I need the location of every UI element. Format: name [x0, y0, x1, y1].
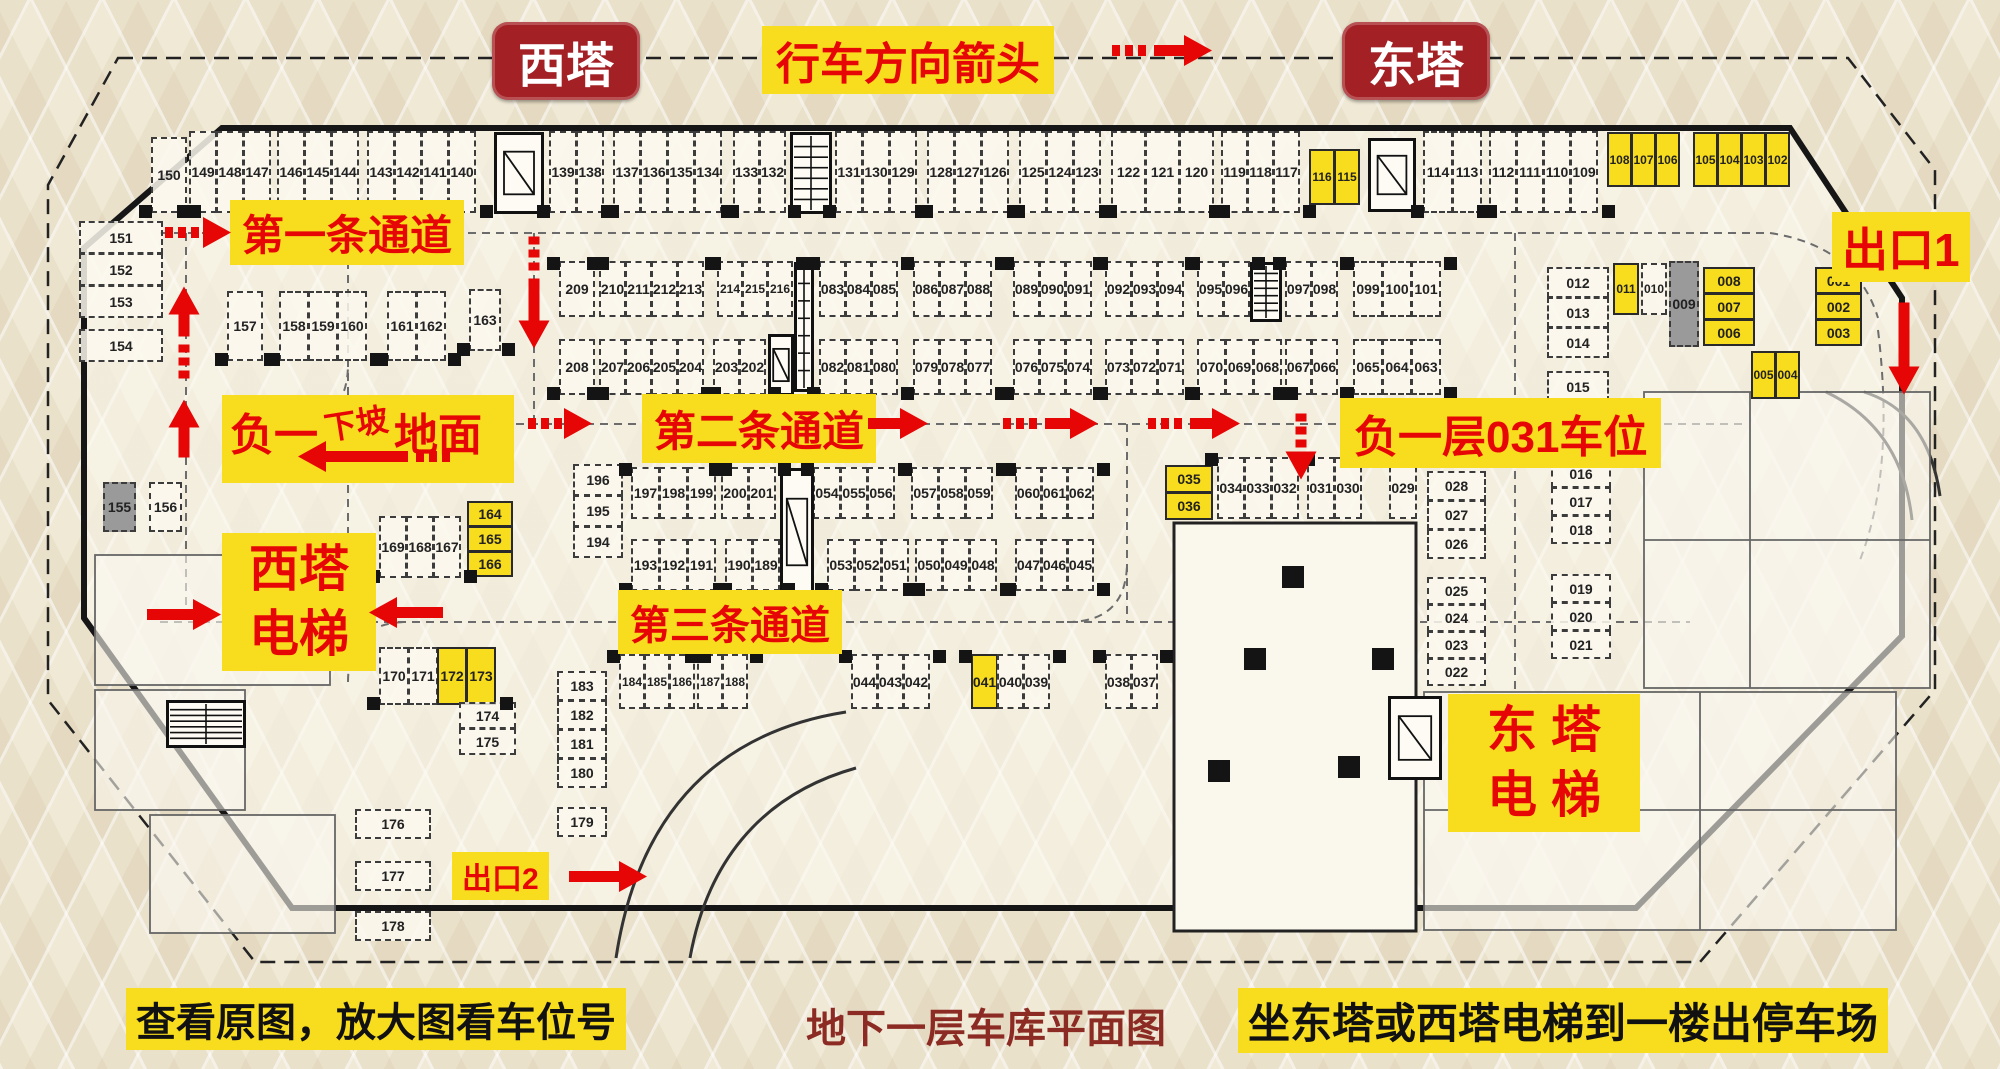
parking-stall: 027	[1427, 500, 1486, 530]
parking-stall: 079	[913, 339, 940, 395]
west-elevator-arrow	[147, 597, 221, 632]
lane2-arrow	[528, 406, 592, 441]
lane1-label: 第一条通道	[230, 200, 464, 265]
parking-stall: 060	[1015, 467, 1042, 519]
parking-stall: 176	[355, 809, 431, 839]
structural-column	[587, 387, 600, 400]
stall-group: 105104103102	[1694, 133, 1790, 187]
parking-stall: 010	[1641, 263, 1667, 315]
stall-group: 047046045	[1016, 540, 1094, 591]
parking-stall: 173	[466, 647, 496, 705]
structural-column	[1097, 463, 1110, 476]
structural-column	[1205, 453, 1218, 466]
parking-stall: 042	[903, 654, 930, 709]
parking-stall: 094	[1157, 261, 1184, 317]
parking-stall: 037	[1131, 654, 1158, 709]
structural-column	[500, 697, 513, 710]
parking-stall: 114	[1423, 131, 1453, 213]
parking-stall: 099	[1353, 261, 1383, 317]
parking-stall: 198	[659, 467, 688, 519]
spot-031-callout: 负一层031车位	[1340, 398, 1661, 468]
stall-group: 010	[1642, 264, 1667, 315]
parking-stall: 172	[437, 647, 467, 705]
parking-stall: 130	[862, 131, 890, 213]
parking-stall: 185	[644, 654, 670, 709]
parking-stall: 171	[408, 647, 438, 705]
parking-stall: 025	[1427, 577, 1486, 605]
structural-column	[1185, 257, 1198, 270]
parking-stall: 154	[79, 329, 163, 362]
parking-stall: 047	[1015, 539, 1042, 591]
elevator-icon	[780, 468, 814, 601]
structural-column	[1602, 205, 1615, 218]
parking-stall: 159	[308, 291, 338, 361]
parking-stall: 211	[625, 261, 652, 317]
parking-stall: 077	[965, 339, 992, 395]
parking-stall: 189	[752, 539, 780, 591]
structural-column	[1007, 205, 1020, 218]
parking-stall: 046	[1041, 539, 1068, 591]
parking-stall: 054	[813, 467, 841, 519]
structural-column	[901, 387, 914, 400]
parking-stall: 021	[1551, 630, 1611, 659]
stall-group: 076075074	[1014, 340, 1092, 395]
parking-stall: 011	[1613, 263, 1639, 315]
parking-stall: 132	[759, 131, 786, 213]
stall-group: 157	[228, 292, 263, 361]
stall-group: 125124123	[1020, 132, 1101, 213]
down-to-031-arrow	[1284, 413, 1319, 479]
up-arrow	[167, 399, 202, 457]
stall-group: 011	[1614, 264, 1639, 315]
west-elevator-line2: 电梯	[222, 602, 376, 667]
structural-column	[933, 650, 946, 663]
parking-stall: 075	[1039, 339, 1066, 395]
parking-stall: 040	[997, 654, 1024, 709]
structural-column	[1160, 650, 1173, 663]
stall-group: 005004	[1752, 352, 1800, 399]
parking-stall: 116	[1309, 149, 1335, 205]
parking-stall: 177	[355, 861, 431, 891]
down-arrow	[517, 236, 552, 348]
structural-column	[1001, 387, 1014, 400]
parking-stall: 018	[1551, 515, 1611, 544]
parking-stall: 035	[1165, 465, 1213, 493]
parking-stall: 017	[1551, 487, 1611, 516]
parking-stall: 205	[651, 339, 678, 395]
parking-stall: 007	[1703, 293, 1755, 320]
stall-group: 169168167	[380, 517, 461, 578]
structural-column	[464, 570, 477, 583]
structural-column	[807, 257, 820, 270]
parking-stall: 122	[1111, 131, 1146, 213]
parking-stall: 202	[739, 339, 766, 395]
structural-column	[915, 205, 928, 218]
parking-stall: 041	[971, 654, 998, 709]
east-elevator-line2: 电 梯	[1448, 763, 1640, 828]
structural-column	[899, 463, 912, 476]
parking-stall: 183	[557, 671, 607, 701]
parking-stall: 023	[1427, 631, 1486, 659]
parking-stall: 127	[954, 131, 982, 213]
parking-stall: 034	[1217, 457, 1245, 519]
stall-group: 164165166	[468, 502, 513, 577]
ramp-down-arrow	[298, 439, 450, 474]
structural-column	[139, 205, 152, 218]
parking-stall: 019	[1551, 574, 1611, 603]
stall-group: 158159160	[280, 292, 367, 361]
parking-stall: 073	[1105, 339, 1132, 395]
parking-stall: 188	[722, 654, 748, 709]
stall-group: 156	[150, 483, 182, 532]
structural-column	[1273, 257, 1286, 270]
stall-group: 083084085	[820, 262, 898, 317]
parking-stall: 095	[1197, 261, 1224, 317]
stall-group: 122121120	[1112, 132, 1214, 213]
parking-stall: 156	[149, 482, 182, 532]
structural-column	[1252, 257, 1265, 270]
structural-column	[1003, 583, 1016, 596]
structural-column	[547, 387, 560, 400]
parking-stall: 182	[557, 700, 607, 730]
structural-column	[215, 353, 228, 366]
parking-stall: 072	[1131, 339, 1158, 395]
parking-stall: 004	[1775, 351, 1800, 399]
parking-stall: 082	[819, 339, 846, 395]
parking-stall: 165	[467, 526, 513, 552]
parking-stall: 105	[1693, 132, 1718, 187]
stall-group: 214215216	[718, 262, 793, 317]
east-tower-badge: 东塔	[1342, 22, 1490, 100]
parking-stall: 036	[1165, 492, 1213, 520]
parking-stall: 117	[1273, 131, 1300, 213]
parking-stall: 126	[981, 131, 1009, 213]
parking-stall: 169	[379, 516, 407, 578]
parking-stall: 039	[1023, 654, 1050, 709]
stall-group: 183182181180	[558, 672, 607, 788]
stall-group: 082081080	[820, 340, 898, 395]
parking-stall: 048	[969, 539, 997, 591]
structural-column	[367, 697, 380, 710]
parking-stall: 175	[459, 728, 516, 755]
stair-icon	[1250, 262, 1282, 327]
structural-column	[721, 205, 734, 218]
parking-stall: 028	[1427, 471, 1486, 501]
parking-stall: 134	[694, 131, 722, 213]
parking-stall: 115	[1334, 149, 1360, 205]
parking-stall: 045	[1067, 539, 1094, 591]
stall-group: 161162	[388, 292, 446, 361]
parking-stall: 194	[573, 526, 623, 558]
parking-stall: 158	[279, 291, 309, 361]
parking-stall: 013	[1547, 297, 1609, 328]
parking-stall: 056	[867, 467, 895, 519]
structural-column	[1285, 387, 1298, 400]
parking-stall: 053	[827, 539, 855, 591]
caption-zoom-hint: 查看原图，放大图看车位号	[126, 988, 626, 1050]
structural-column	[901, 257, 914, 270]
stall-group: 207206205204	[600, 340, 704, 395]
structural-column	[705, 257, 718, 270]
west-elevator-line1: 西塔	[222, 537, 376, 602]
parking-stall: 170	[379, 647, 409, 705]
parking-stall: 087	[939, 261, 966, 317]
parking-stall: 157	[227, 291, 263, 361]
stall-group: 060061062	[1016, 468, 1094, 519]
parking-stall: 197	[631, 467, 660, 519]
parking-stall: 139	[549, 131, 577, 213]
parking-stall: 085	[871, 261, 898, 317]
stall-group: 178	[356, 912, 431, 941]
parking-stall: 071	[1157, 339, 1184, 395]
parking-stall: 164	[467, 501, 513, 527]
stair-icon	[166, 700, 246, 753]
structural-column	[959, 650, 972, 663]
parking-stall: 022	[1427, 658, 1486, 686]
parking-stall: 005	[1751, 351, 1776, 399]
stall-group: 108107106	[1608, 133, 1680, 187]
stall-group: 133132	[734, 132, 786, 213]
parking-stall: 195	[573, 495, 623, 527]
parking-stall: 061	[1041, 467, 1068, 519]
parking-stall: 088	[965, 261, 992, 317]
structural-column	[1001, 257, 1014, 270]
parking-stall: 212	[651, 261, 678, 317]
structural-column	[1209, 205, 1222, 218]
parking-stall: 125	[1019, 131, 1047, 213]
stall-group: 210211212213	[600, 262, 704, 317]
parking-stall: 151	[79, 221, 163, 254]
caption-elevator-hint: 坐东塔或西塔电梯到一楼出停车场	[1238, 988, 1888, 1053]
drive-direction-label: 行车方向箭头	[762, 26, 1054, 94]
parking-stall: 137	[613, 131, 641, 213]
stall-group: 112111110109	[1490, 132, 1598, 213]
east-elevator-line1: 东 塔	[1448, 698, 1640, 763]
parking-stall: 112	[1489, 131, 1517, 213]
parking-stall: 059	[965, 467, 993, 519]
elevator-icon	[1388, 696, 1442, 785]
parking-stall: 069	[1225, 339, 1254, 395]
parking-stall: 161	[387, 291, 417, 361]
parking-stall: 121	[1145, 131, 1180, 213]
parking-stall: 008	[1703, 267, 1755, 294]
structural-column	[375, 353, 388, 366]
parking-stall: 092	[1105, 261, 1132, 317]
parking-stall: 216	[767, 261, 793, 317]
stall-group: 019020021	[1552, 575, 1611, 659]
parking-stall: 066	[1311, 339, 1338, 395]
stall-group: 128127126	[928, 132, 1009, 213]
parking-stall: 213	[677, 261, 704, 317]
parking-stall: 152	[79, 253, 163, 286]
stall-group: 209	[560, 262, 595, 317]
stall-group: 137136135134	[614, 132, 722, 213]
parking-stall: 111	[1516, 131, 1544, 213]
parking-stall: 201	[748, 467, 776, 519]
parking-stall: 196	[573, 464, 623, 496]
structural-column	[1303, 205, 1316, 218]
stall-group: 203202	[714, 340, 766, 395]
parking-stall: 104	[1717, 132, 1742, 187]
lane1-entry-arrow	[165, 215, 231, 250]
parking-stall: 096	[1223, 261, 1250, 317]
parking-stall: 162	[416, 291, 446, 361]
parking-stall: 133	[733, 131, 760, 213]
stall-group: 044043042	[852, 655, 930, 709]
stall-group: 070069068	[1198, 340, 1282, 395]
stair-icon	[794, 262, 814, 397]
parking-stall: 078	[939, 339, 966, 395]
structural-column	[480, 205, 493, 218]
parking-stall: 113	[1452, 131, 1482, 213]
stall-group: 163	[470, 290, 501, 351]
stall-group: 155	[104, 483, 136, 532]
parking-stall: 074	[1065, 339, 1092, 395]
parking-stall: 083	[819, 261, 846, 317]
parking-stall: 052	[854, 539, 882, 591]
structural-column	[1093, 387, 1106, 400]
parking-stall: 064	[1382, 339, 1412, 395]
parking-stall: 191	[687, 539, 716, 591]
stall-group: 008007006	[1704, 268, 1755, 346]
parking-stall: 167	[433, 516, 461, 578]
stall-group: 116115	[1310, 150, 1360, 205]
parking-stall: 129	[889, 131, 917, 213]
stall-group: 009	[1670, 262, 1699, 347]
parking-stall: 102	[1765, 132, 1790, 187]
parking-stall: 002	[1815, 293, 1862, 320]
parking-stall: 090	[1039, 261, 1066, 317]
stall-group: 150	[152, 138, 187, 213]
parking-stall: 204	[677, 339, 704, 395]
parking-stall: 014	[1547, 327, 1609, 358]
stall-group: 179	[558, 808, 607, 837]
stall-group: 038037	[1106, 655, 1158, 709]
east-tower-elevator-label: 东 塔 电 梯	[1448, 694, 1640, 832]
structural-column	[502, 343, 515, 356]
stall-group: 190189	[726, 540, 780, 591]
west-tower-badge: 西塔	[492, 22, 640, 100]
structural-column	[457, 343, 470, 356]
structural-column	[1097, 583, 1110, 596]
stall-group: 176	[356, 810, 431, 839]
parking-stall: 107	[1631, 132, 1656, 187]
structural-column	[1444, 257, 1457, 270]
parking-stall: 057	[911, 467, 939, 519]
parking-stall: 076	[1013, 339, 1040, 395]
exit2-arrow	[569, 859, 647, 894]
parking-stall: 118	[1247, 131, 1274, 213]
parking-stall: 101	[1411, 261, 1441, 317]
stall-group: 079078077	[914, 340, 992, 395]
structural-column	[537, 205, 550, 218]
parking-stall: 093	[1131, 261, 1158, 317]
parking-stall: 178	[355, 911, 431, 941]
stall-group: 139138	[550, 132, 604, 213]
parking-stall: 138	[576, 131, 604, 213]
parking-stall: 103	[1741, 132, 1766, 187]
parking-stall: 097	[1285, 261, 1312, 317]
structural-column	[1341, 257, 1354, 270]
parking-stall: 026	[1427, 529, 1486, 559]
stall-group: 025024023022	[1428, 578, 1486, 686]
parking-stall: 108	[1607, 132, 1632, 187]
structural-column	[1093, 650, 1106, 663]
parking-stall: 043	[877, 654, 904, 709]
parking-stall: 084	[845, 261, 872, 317]
west-elevator-arrow	[369, 595, 443, 630]
parking-stall: 091	[1065, 261, 1092, 317]
elevator-icon	[1368, 138, 1416, 217]
structural-column	[1093, 257, 1106, 270]
parking-stall: 119	[1221, 131, 1248, 213]
stall-group: 041040039	[972, 655, 1050, 709]
stall-group: 196195194	[574, 465, 623, 558]
structural-column	[823, 205, 836, 218]
stall-group: 057058059	[912, 468, 993, 519]
structural-column	[709, 463, 722, 476]
stall-group: 012013014	[1548, 268, 1609, 358]
stall-group: 028027026	[1428, 472, 1486, 559]
parking-stall: 120	[1179, 131, 1214, 213]
parking-stall: 012	[1547, 267, 1609, 298]
lane2-arrow	[1148, 406, 1240, 441]
parking-stall: 149	[189, 131, 217, 213]
stall-group: 197198199	[632, 468, 716, 519]
structural-column	[619, 463, 632, 476]
stall-group: 193192191	[632, 540, 716, 591]
parking-stall: 038	[1105, 654, 1132, 709]
parking-stall: 033	[1244, 457, 1272, 519]
parking-stall: 192	[659, 539, 688, 591]
parking-stall: 193	[631, 539, 660, 591]
parking-stall: 180	[557, 758, 607, 788]
parking-stall: 184	[619, 654, 645, 709]
parking-stall: 044	[851, 654, 878, 709]
west-tower-elevator-label: 西塔 电梯	[222, 533, 376, 671]
exit1-arrow	[1887, 302, 1922, 394]
stall-group: 095096	[1198, 262, 1250, 317]
parking-stall: 128	[927, 131, 955, 213]
parking-stall: 153	[79, 285, 163, 318]
structural-column	[587, 257, 600, 270]
drive-direction-arrow	[1112, 33, 1212, 68]
parking-floor-plan: 西塔 东塔 行车方向箭头 第一条通道 第二条通道 第三条通道 出口1 出口2 负…	[0, 0, 2000, 1069]
parking-stall: 179	[557, 807, 607, 837]
parking-stall: 062	[1067, 467, 1094, 519]
stall-group: 184185186	[620, 655, 695, 709]
structural-column	[1099, 205, 1112, 218]
parking-stall: 020	[1551, 602, 1611, 631]
parking-stall: 080	[871, 339, 898, 395]
parking-stall: 160	[337, 291, 367, 361]
parking-stall: 110	[1543, 131, 1571, 213]
stall-group: 174175	[460, 703, 516, 755]
stall-group: 050049048	[916, 540, 997, 591]
structural-column	[1411, 205, 1424, 218]
exit2-label: 出口2	[452, 852, 549, 900]
parking-stall: 063	[1411, 339, 1441, 395]
parking-stall: 086	[913, 261, 940, 317]
stall-group: 016017018	[1552, 460, 1611, 544]
parking-stall: 058	[938, 467, 966, 519]
parking-stall: 136	[640, 131, 668, 213]
structural-column	[778, 463, 791, 476]
stall-group: 177	[356, 862, 431, 891]
structural-column	[601, 205, 614, 218]
parking-stall: 009	[1669, 261, 1699, 347]
parking-stall: 081	[845, 339, 872, 395]
